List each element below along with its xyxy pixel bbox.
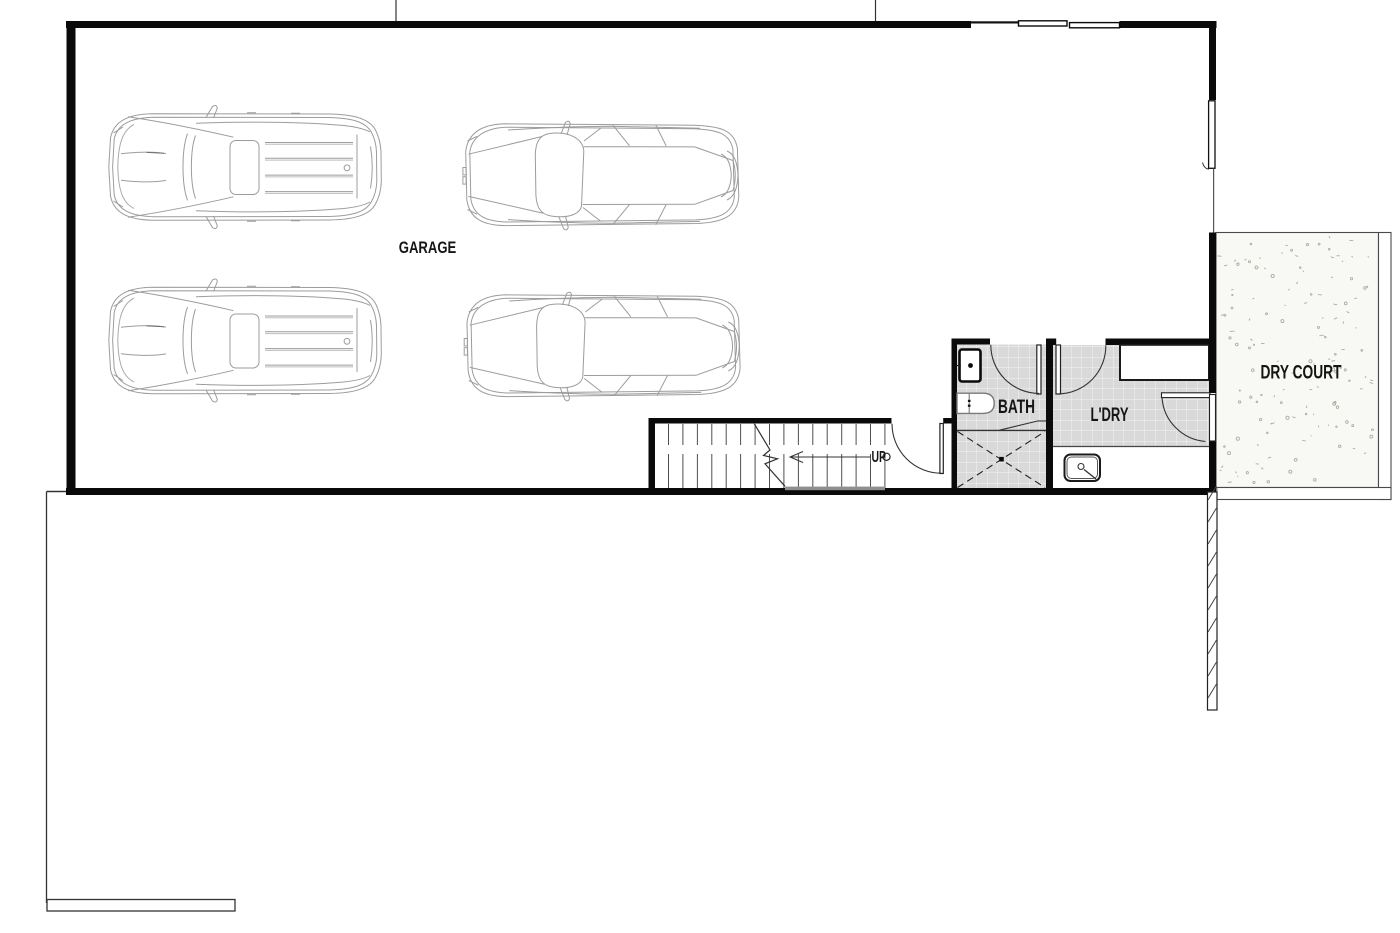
svg-text:UP: UP xyxy=(872,449,887,466)
svg-text:GARAGE: GARAGE xyxy=(399,238,457,257)
svg-text:BATH: BATH xyxy=(998,397,1035,418)
svg-text:DRY COURT: DRY COURT xyxy=(1261,363,1342,384)
svg-text:L'DRY: L'DRY xyxy=(1091,405,1129,426)
